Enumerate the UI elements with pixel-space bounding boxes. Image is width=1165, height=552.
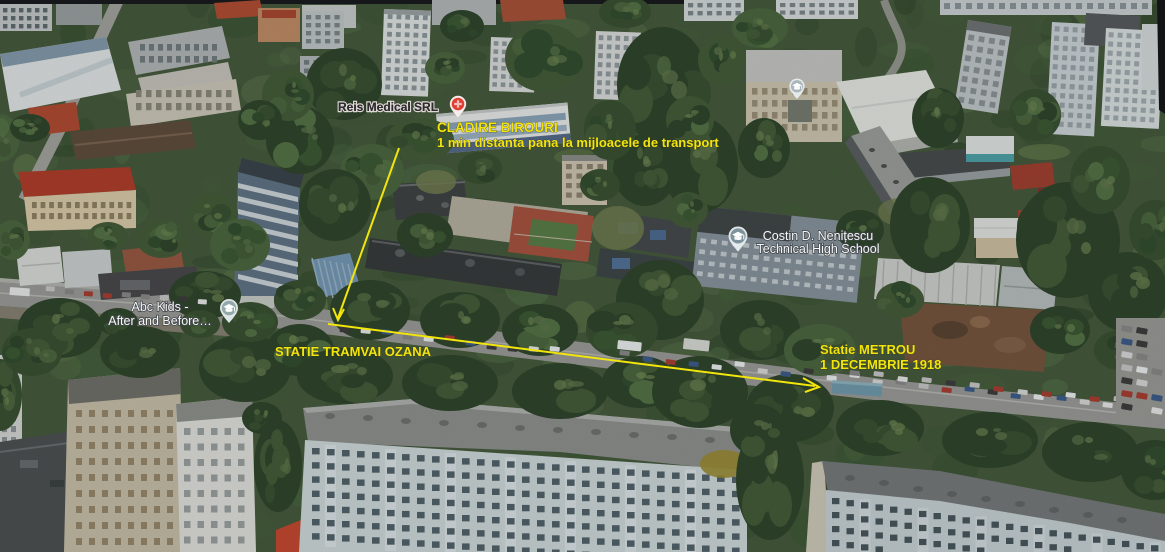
svg-text:1 min distanta pana la mijloac: 1 min distanta pana la mijloacele de tra… [437,135,719,150]
svg-text:STATIE TRAMVAI OZANA: STATIE TRAMVAI OZANA [275,344,432,359]
svg-text:Abc Kids -: Abc Kids - [132,300,189,314]
svg-text:Technical High School: Technical High School [757,242,880,256]
svg-text:CLADIRE BIROURI: CLADIRE BIROURI [437,120,558,135]
svg-text:Statie METROU: Statie METROU [820,342,915,357]
svg-text:After and Before…: After and Before… [108,314,212,328]
svg-text:1 DECEMBRIE 1918: 1 DECEMBRIE 1918 [820,357,941,372]
svg-text:Costin D. Nenițescu: Costin D. Nenițescu [763,229,874,243]
svg-text:Reis Medical SRL: Reis Medical SRL [338,100,438,114]
